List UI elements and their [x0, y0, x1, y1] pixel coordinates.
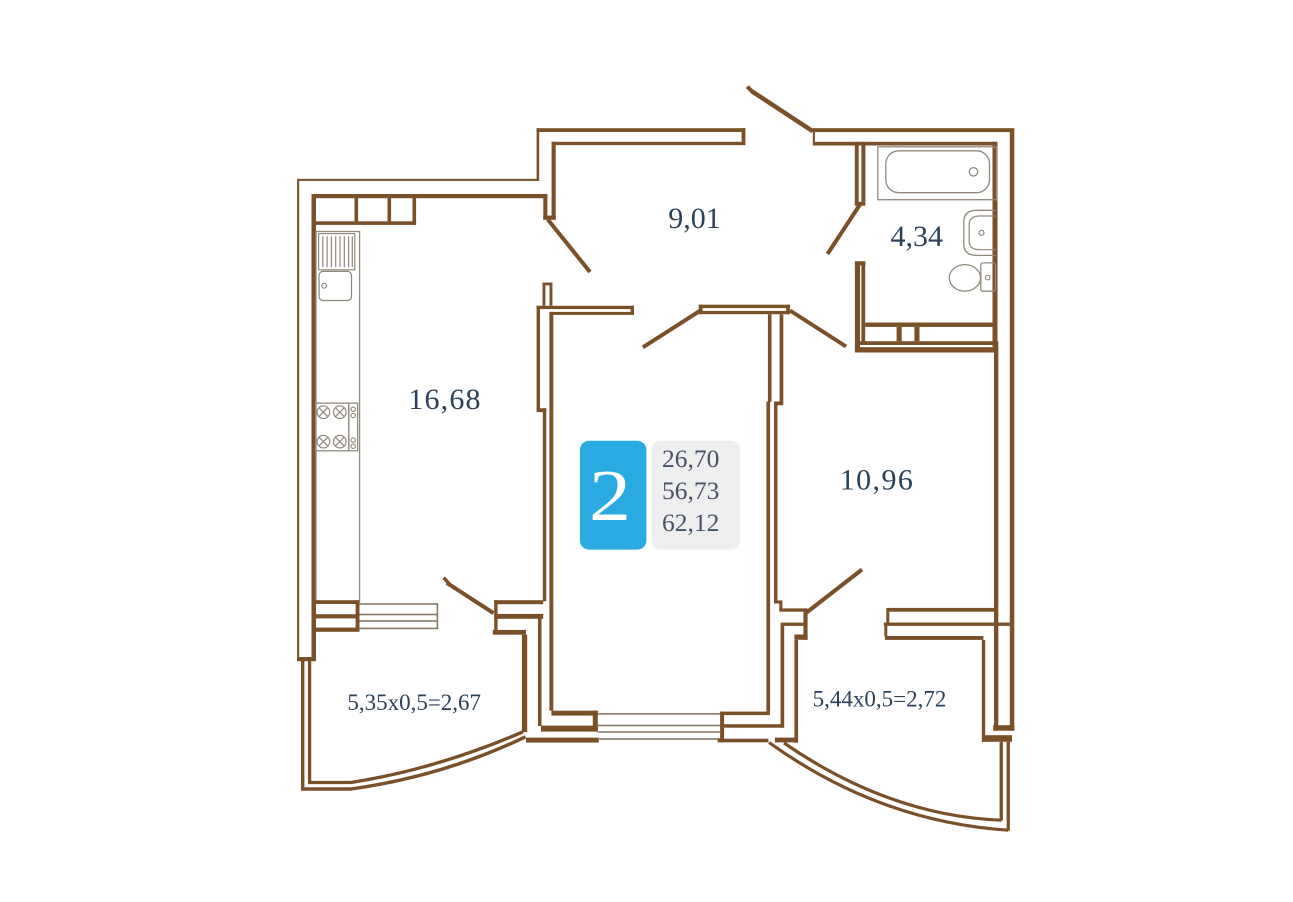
svg-text:5,35x0,5=2,67: 5,35x0,5=2,67	[347, 690, 481, 715]
svg-text:4,34: 4,34	[890, 220, 943, 253]
svg-text:10,96: 10,96	[840, 464, 915, 497]
svg-text:9,01: 9,01	[668, 202, 721, 235]
svg-text:2: 2	[589, 455, 631, 536]
svg-text:56,73: 56,73	[662, 476, 719, 505]
svg-text:5,44x0,5=2,72: 5,44x0,5=2,72	[813, 687, 947, 712]
svg-text:16,68: 16,68	[408, 383, 482, 416]
svg-text:26,70: 26,70	[662, 444, 719, 473]
svg-text:62,12: 62,12	[662, 508, 719, 537]
